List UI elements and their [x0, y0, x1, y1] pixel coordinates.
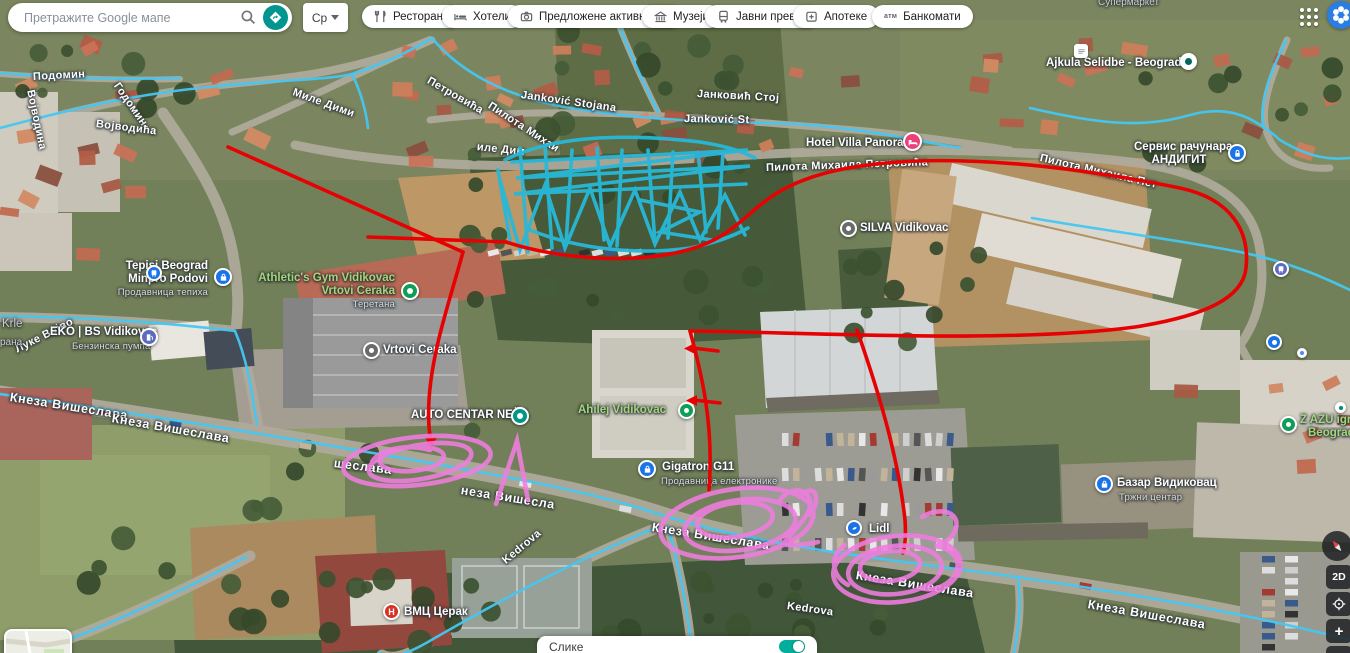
- chip-label: Музеји: [673, 11, 709, 23]
- zoom-in-button[interactable]: +: [1326, 619, 1350, 643]
- camera-icon: [520, 10, 533, 23]
- chip-label: Банкомати: [903, 11, 961, 23]
- images-panel[interactable]: Слике: [537, 636, 817, 653]
- chip-atms[interactable]: атм Банкомати: [872, 5, 973, 28]
- language-selector[interactable]: Ср: [303, 3, 348, 32]
- tilt-rotate-button[interactable]: [1326, 592, 1350, 616]
- transit-icon: [717, 10, 730, 23]
- chip-label: Апотеке: [824, 11, 867, 23]
- pharmacy-icon: [805, 10, 818, 23]
- avatar-flower-icon: [1327, 1, 1350, 29]
- hotel-icon: [454, 10, 467, 23]
- compass-needle-icon: [1323, 532, 1350, 560]
- google-maps-app: Подомин Војводина Годомин Миле Дими Петр…: [0, 0, 1350, 653]
- images-panel-label: Слике: [549, 640, 583, 653]
- zoom-out-button[interactable]: –: [1326, 646, 1350, 653]
- language-label: Ср: [312, 11, 327, 25]
- chip-pharmacies[interactable]: Апотеке: [793, 5, 879, 28]
- layers-minimap-button[interactable]: [4, 629, 72, 653]
- compass-control[interactable]: [1322, 531, 1350, 561]
- apps-grid-icon: [1297, 5, 1321, 29]
- restaurant-icon: [374, 10, 387, 23]
- gyro-target-icon: [1332, 597, 1346, 611]
- chip-label: Хотели: [473, 11, 511, 23]
- directions-icon: [266, 8, 285, 27]
- search-box[interactable]: [8, 3, 292, 32]
- toggle-knob: [793, 641, 804, 652]
- directions-button[interactable]: [263, 5, 288, 30]
- atm-icon: атм: [884, 13, 897, 20]
- search-input[interactable]: [22, 10, 240, 26]
- map-canvas[interactable]: [0, 0, 1350, 653]
- 2d-mode-button[interactable]: 2D: [1326, 565, 1350, 589]
- images-toggle[interactable]: [779, 640, 805, 653]
- minimap-preview: [6, 631, 70, 653]
- account-avatar[interactable]: [1327, 1, 1350, 29]
- google-apps-button[interactable]: [1297, 5, 1321, 29]
- search-icon[interactable]: [240, 9, 257, 26]
- chevron-down-icon: [331, 15, 339, 20]
- chip-label: Ресторани: [393, 11, 449, 23]
- museum-icon: [654, 10, 667, 23]
